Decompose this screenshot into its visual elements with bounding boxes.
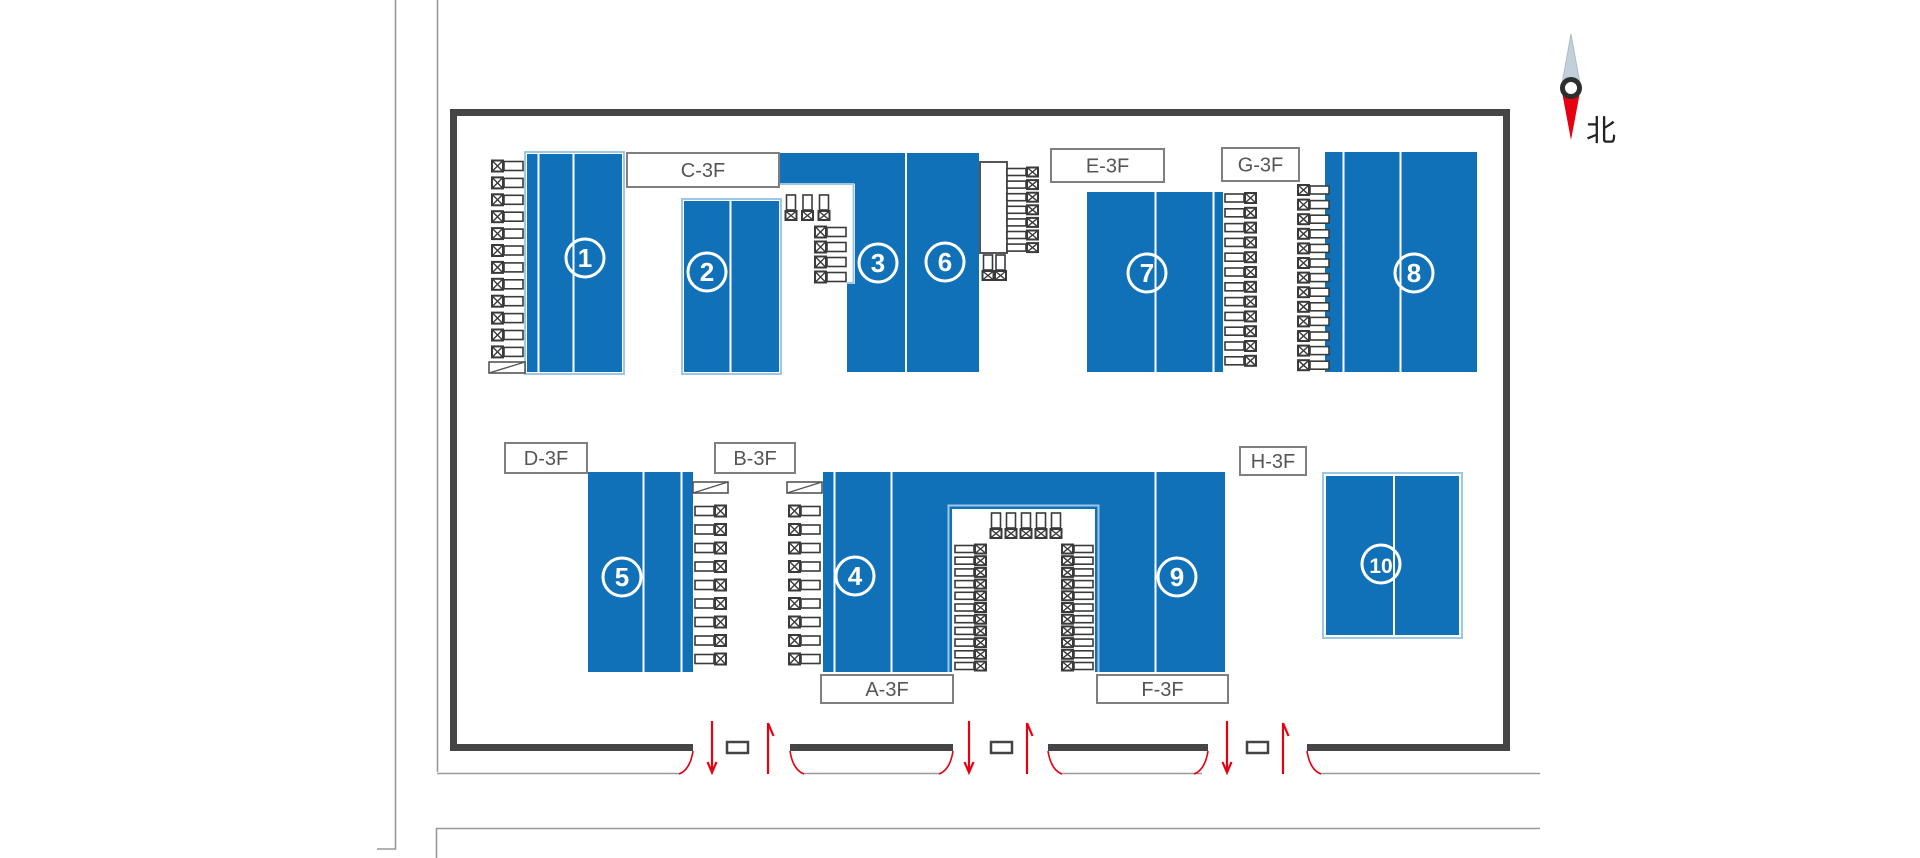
truck-trailer: [1074, 663, 1093, 670]
building-number: 3: [871, 248, 885, 278]
truck-trailer: [801, 525, 820, 534]
gate-curb-arc: [939, 751, 953, 774]
truck-trailer: [1310, 332, 1329, 340]
building-block: [780, 153, 979, 184]
truck-trailer: [504, 297, 523, 306]
building-6-dock-vertical: [983, 255, 1007, 280]
truck-trailer: [1310, 186, 1329, 194]
truck-icon: [1225, 208, 1256, 218]
building-block: [906, 183, 979, 372]
building-number: 6: [938, 247, 952, 277]
truck-icon: [955, 568, 986, 577]
truck-icon: [789, 598, 820, 609]
truck-trailer: [1007, 169, 1026, 176]
truck-icon: [1062, 580, 1093, 589]
truck-trailer: [1225, 357, 1244, 365]
court-west-docks: [955, 545, 986, 671]
gate: [1194, 721, 1321, 774]
truck-trailer: [1074, 557, 1093, 564]
truck-icon: [1298, 229, 1329, 239]
truck-trailer: [955, 604, 974, 611]
truck-icon: [492, 330, 523, 341]
gate: [939, 721, 1062, 774]
zone-label-F-3F: F-3F: [1097, 675, 1228, 703]
truck-trailer: [827, 258, 846, 267]
truck-trailer: [1074, 546, 1093, 553]
truck-icon: [789, 524, 820, 535]
building-number: 8: [1407, 258, 1421, 288]
entry-arrow-down: [708, 721, 717, 773]
ramp-hatch: [693, 482, 728, 493]
truck-trailer: [827, 273, 846, 282]
truck-icon: [955, 556, 986, 565]
truck-icon: [1062, 626, 1093, 635]
truck-trailer: [695, 544, 714, 553]
road-lines: [377, 0, 1540, 858]
truck-icon: [695, 598, 726, 609]
truck-trailer: [1225, 342, 1244, 350]
truck-trailer: [787, 195, 796, 210]
building-number: 1: [578, 243, 592, 273]
truck-trailer: [695, 581, 714, 590]
truck-icon: [492, 161, 523, 172]
truck-trailer: [1225, 312, 1244, 320]
truck-icon: [1225, 356, 1256, 366]
truck-trailer: [1074, 592, 1093, 599]
truck-trailer: [1310, 230, 1329, 238]
truck-trailer: [1007, 513, 1016, 528]
gate-curb-arc: [790, 751, 804, 774]
truck-trailer: [1310, 361, 1329, 369]
truck-trailer: [1007, 219, 1026, 226]
truck-icon: [1298, 200, 1329, 210]
zone-label-text: G-3F: [1238, 155, 1284, 177]
truck-trailer: [504, 195, 523, 204]
truck-icon: [786, 195, 797, 220]
truck-trailer: [1225, 209, 1244, 217]
court-north-vertical: [991, 513, 1062, 538]
truck-icon: [1007, 218, 1038, 227]
gate-curb-arc: [1307, 751, 1321, 774]
truck-icon: [1007, 243, 1038, 252]
truck-trailer: [801, 618, 820, 627]
exit-arrow-up: [1027, 723, 1033, 774]
building-2: 2: [682, 199, 781, 374]
building-block: [847, 284, 906, 372]
truck-icon: [819, 195, 830, 220]
building-number: 7: [1140, 258, 1154, 288]
truck-icon: [1062, 545, 1093, 554]
truck-trailer: [1007, 244, 1026, 251]
truck-trailer: [1225, 298, 1244, 306]
truck-trailer: [695, 599, 714, 608]
truck-trailer: [1310, 274, 1329, 282]
truck-icon: [492, 313, 523, 324]
truck-icon: [695, 543, 726, 554]
truck-icon: [695, 561, 726, 572]
truck-trailer: [1007, 206, 1026, 213]
truck-trailer: [1037, 513, 1046, 528]
truck-icon: [1298, 185, 1329, 195]
truck-icon: [815, 242, 846, 253]
truck-trailer: [504, 229, 523, 238]
truck-icon: [1007, 168, 1038, 177]
truck-trailer: [955, 546, 974, 553]
truck-icon: [492, 296, 523, 307]
building-number: 4: [848, 561, 863, 591]
truck-icon: [1062, 603, 1093, 612]
truck-icon: [1036, 513, 1047, 538]
truck-trailer: [984, 255, 993, 270]
truck-trailer: [955, 616, 974, 623]
truck-trailer: [695, 562, 714, 571]
truck-trailer: [504, 178, 523, 187]
truck-trailer: [801, 636, 820, 645]
exit-arrow-up: [1283, 723, 1289, 774]
truck-icon: [1062, 556, 1093, 565]
truck-icon: [1225, 326, 1256, 336]
gate-booth: [1247, 742, 1268, 753]
truck-icon: [983, 255, 994, 280]
truck-icon: [492, 346, 523, 357]
truck-icon: [1225, 267, 1256, 277]
truck-trailer: [801, 655, 820, 664]
truck-trailer: [1052, 513, 1061, 528]
building-number: 5: [615, 562, 629, 592]
gate: [679, 721, 804, 774]
truck-icon: [1062, 568, 1093, 577]
site-floor-plan-page: 12367854910C-3FE-3FG-3FD-3FB-3FH-3FA-3FF…: [0, 0, 1920, 858]
truck-trailer: [1074, 616, 1093, 623]
truck-trailer: [801, 581, 820, 590]
truck-icon: [789, 561, 820, 572]
truck-icon: [1298, 360, 1329, 370]
truck-icon: [955, 662, 986, 671]
truck-trailer: [695, 525, 714, 534]
compass-red-needle: [1562, 92, 1580, 140]
zone-label-A-3F: A-3F: [821, 675, 953, 703]
truck-icon: [789, 635, 820, 646]
truck-trailer: [1074, 581, 1093, 588]
truck-icon: [492, 279, 523, 290]
truck-trailer: [1310, 244, 1329, 252]
truck-trailer: [992, 513, 1001, 528]
truck-trailer: [504, 162, 523, 171]
truck-trailer: [801, 507, 820, 516]
zone-label-E-3F: E-3F: [1051, 149, 1164, 182]
truck-icon: [695, 654, 726, 665]
truck-icon: [1225, 297, 1256, 307]
truck-trailer: [955, 627, 974, 634]
truck-icon: [1225, 311, 1256, 321]
compass-ring: [1563, 80, 1580, 97]
building-block: [1095, 509, 1225, 672]
building-block: [823, 472, 1225, 509]
zone-label-text: D-3F: [524, 448, 568, 470]
truck-trailer: [504, 246, 523, 255]
truck-icon: [492, 194, 523, 205]
building-7: 7: [1087, 192, 1223, 372]
truck-trailer: [1310, 288, 1329, 296]
truck-trailer: [1225, 224, 1244, 232]
zone-label-H-3F: H-3F: [1240, 447, 1306, 475]
truck-icon: [815, 257, 846, 268]
truck-icon: [1298, 302, 1329, 312]
truck-trailer: [801, 562, 820, 571]
ramp-hatch: [489, 362, 525, 373]
building-5-east-docks: [695, 506, 726, 665]
truck-trailer: [504, 212, 523, 221]
entrance-gates: [679, 721, 1321, 774]
truck-trailer: [803, 195, 812, 210]
zone-label-C-3F: C-3F: [627, 153, 779, 187]
truck-trailer: [1310, 303, 1329, 311]
zone-label-text: C-3F: [681, 160, 725, 182]
truck-icon: [1298, 258, 1329, 268]
building-1: 1: [525, 152, 624, 374]
truck-trailer: [695, 636, 714, 645]
truck-trailer: [1225, 253, 1244, 261]
truck-icon: [492, 211, 523, 222]
truck-icon: [1007, 193, 1038, 202]
truck-icon: [995, 255, 1006, 280]
truck-trailer: [801, 544, 820, 553]
truck-icon: [1062, 650, 1093, 659]
gate-booth: [991, 742, 1012, 753]
truck-trailer: [996, 255, 1005, 270]
truck-trailer: [955, 581, 974, 588]
court-east-docks: [1062, 545, 1093, 671]
truck-icon: [1298, 331, 1329, 341]
building-number: 9: [1170, 562, 1184, 592]
truck-icon: [695, 506, 726, 517]
truck-trailer: [1310, 215, 1329, 223]
truck-icon: [802, 195, 813, 220]
truck-trailer: [504, 347, 523, 356]
truck-icon: [789, 654, 820, 665]
truck-trailer: [1225, 194, 1244, 202]
building-8: 8: [1325, 152, 1477, 372]
truck-icon: [789, 506, 820, 517]
entry-arrow-down: [965, 721, 974, 773]
truck-trailer: [820, 195, 829, 210]
truck-trailer: [504, 263, 523, 272]
truck-trailer: [1007, 232, 1026, 239]
truck-icon: [1298, 346, 1329, 356]
truck-icon: [492, 177, 523, 188]
ramp-hatch: [787, 482, 822, 493]
truck-trailer: [1074, 604, 1093, 611]
truck-trailer: [1007, 194, 1026, 201]
gate-curb-arc: [1048, 751, 1062, 774]
north-label: 北: [1586, 106, 1616, 150]
dock-platform: [980, 162, 1007, 253]
truck-trailer: [955, 557, 974, 564]
truck-trailer: [695, 655, 714, 664]
truck-icon: [492, 228, 523, 239]
building-7-east-docks: [1225, 193, 1256, 366]
truck-icon: [955, 626, 986, 635]
truck-trailer: [1074, 627, 1093, 634]
compass-top-needle: [1562, 34, 1580, 84]
truck-icon: [955, 615, 986, 624]
truck-icon: [815, 272, 846, 283]
truck-icon: [955, 650, 986, 659]
truck-trailer: [695, 618, 714, 627]
building-3-court-docks: [815, 227, 846, 283]
truck-trailer: [1007, 181, 1026, 188]
gate-curb-arc: [679, 751, 693, 774]
gate-curb-arc: [1194, 751, 1208, 774]
truck-icon: [1007, 180, 1038, 189]
truck-trailer: [504, 331, 523, 340]
truck-icon: [1225, 282, 1256, 292]
road-line: [377, 0, 396, 849]
zone-label-G-3F: G-3F: [1222, 148, 1299, 181]
truck-trailer: [827, 228, 846, 237]
building-1-west-docks: [492, 161, 523, 358]
zone-label-text: A-3F: [865, 679, 908, 701]
building-number: 10: [1369, 555, 1392, 578]
truck-icon: [1298, 214, 1329, 224]
truck-icon: [695, 617, 726, 628]
truck-icon: [1007, 205, 1038, 214]
site-plan-drawing: 12367854910C-3FE-3FG-3FD-3FB-3FH-3FA-3FF…: [0, 0, 1920, 858]
truck-trailer: [801, 599, 820, 608]
truck-icon: [1298, 273, 1329, 283]
truck-icon: [1298, 287, 1329, 297]
truck-trailer: [1074, 639, 1093, 646]
truck-icon: [955, 638, 986, 647]
truck-trailer: [1310, 347, 1329, 355]
building-8-west-docks: [1298, 185, 1329, 370]
entry-arrow-down: [1223, 721, 1232, 773]
truck-trailer: [695, 507, 714, 516]
building-6-dock-east: [1007, 168, 1038, 253]
truck-trailer: [955, 569, 974, 576]
truck-icon: [1006, 513, 1017, 538]
truck-icon: [955, 591, 986, 600]
truck-trailer: [827, 243, 846, 252]
truck-icon: [815, 227, 846, 238]
truck-trailer: [504, 280, 523, 289]
truck-trailer: [1225, 327, 1244, 335]
truck-trailer: [1310, 317, 1329, 325]
truck-trailer: [1225, 268, 1244, 276]
truck-icon: [955, 545, 986, 554]
truck-icon: [1007, 231, 1038, 240]
truck-icon: [789, 617, 820, 628]
truck-trailer: [504, 314, 523, 323]
truck-icon: [1062, 662, 1093, 671]
truck-icon: [1298, 243, 1329, 253]
truck-icon: [695, 635, 726, 646]
truck-icon: [492, 262, 523, 273]
truck-icon: [1062, 638, 1093, 647]
building-5: 5: [588, 472, 693, 672]
truck-trailer: [1310, 201, 1329, 209]
zone-label-text: F-3F: [1141, 679, 1183, 701]
truck-icon: [1298, 316, 1329, 326]
truck-trailer: [1310, 259, 1329, 267]
truck-trailer: [955, 639, 974, 646]
building-6: 6: [906, 153, 979, 372]
truck-trailer: [1225, 283, 1244, 291]
building-3-court-vertical: [786, 195, 830, 220]
zone-label-D-3F: D-3F: [505, 443, 587, 473]
truck-icon: [1225, 193, 1256, 203]
road-line: [437, 829, 1541, 858]
building-number: 2: [700, 257, 714, 287]
truck-icon: [492, 245, 523, 256]
truck-icon: [789, 543, 820, 554]
truck-trailer: [955, 663, 974, 670]
truck-trailer: [955, 592, 974, 599]
zone-label-text: H-3F: [1251, 451, 1295, 473]
truck-trailer: [1022, 513, 1031, 528]
gate-booth: [727, 742, 748, 753]
truck-icon: [1051, 513, 1062, 538]
truck-trailer: [1225, 238, 1244, 246]
truck-icon: [955, 603, 986, 612]
truck-icon: [1225, 223, 1256, 233]
zone-label-B-3F: B-3F: [715, 443, 795, 473]
truck-icon: [1021, 513, 1032, 538]
truck-icon: [1062, 615, 1093, 624]
compass: [1562, 34, 1580, 140]
truck-icon: [991, 513, 1002, 538]
truck-icon: [1225, 252, 1256, 262]
truck-trailer: [1074, 569, 1093, 576]
truck-trailer: [955, 651, 974, 658]
truck-icon: [695, 524, 726, 535]
exit-arrow-up: [768, 723, 774, 774]
truck-icon: [955, 580, 986, 589]
truck-icon: [1225, 237, 1256, 247]
zone-label-text: B-3F: [733, 448, 776, 470]
building-4-west-docks: [789, 506, 820, 665]
truck-trailer: [1074, 651, 1093, 658]
truck-icon: [1225, 341, 1256, 351]
truck-icon: [695, 580, 726, 591]
building-10: 10: [1323, 473, 1462, 638]
truck-icon: [1062, 591, 1093, 600]
truck-icon: [789, 580, 820, 591]
zone-label-text: E-3F: [1086, 156, 1129, 178]
